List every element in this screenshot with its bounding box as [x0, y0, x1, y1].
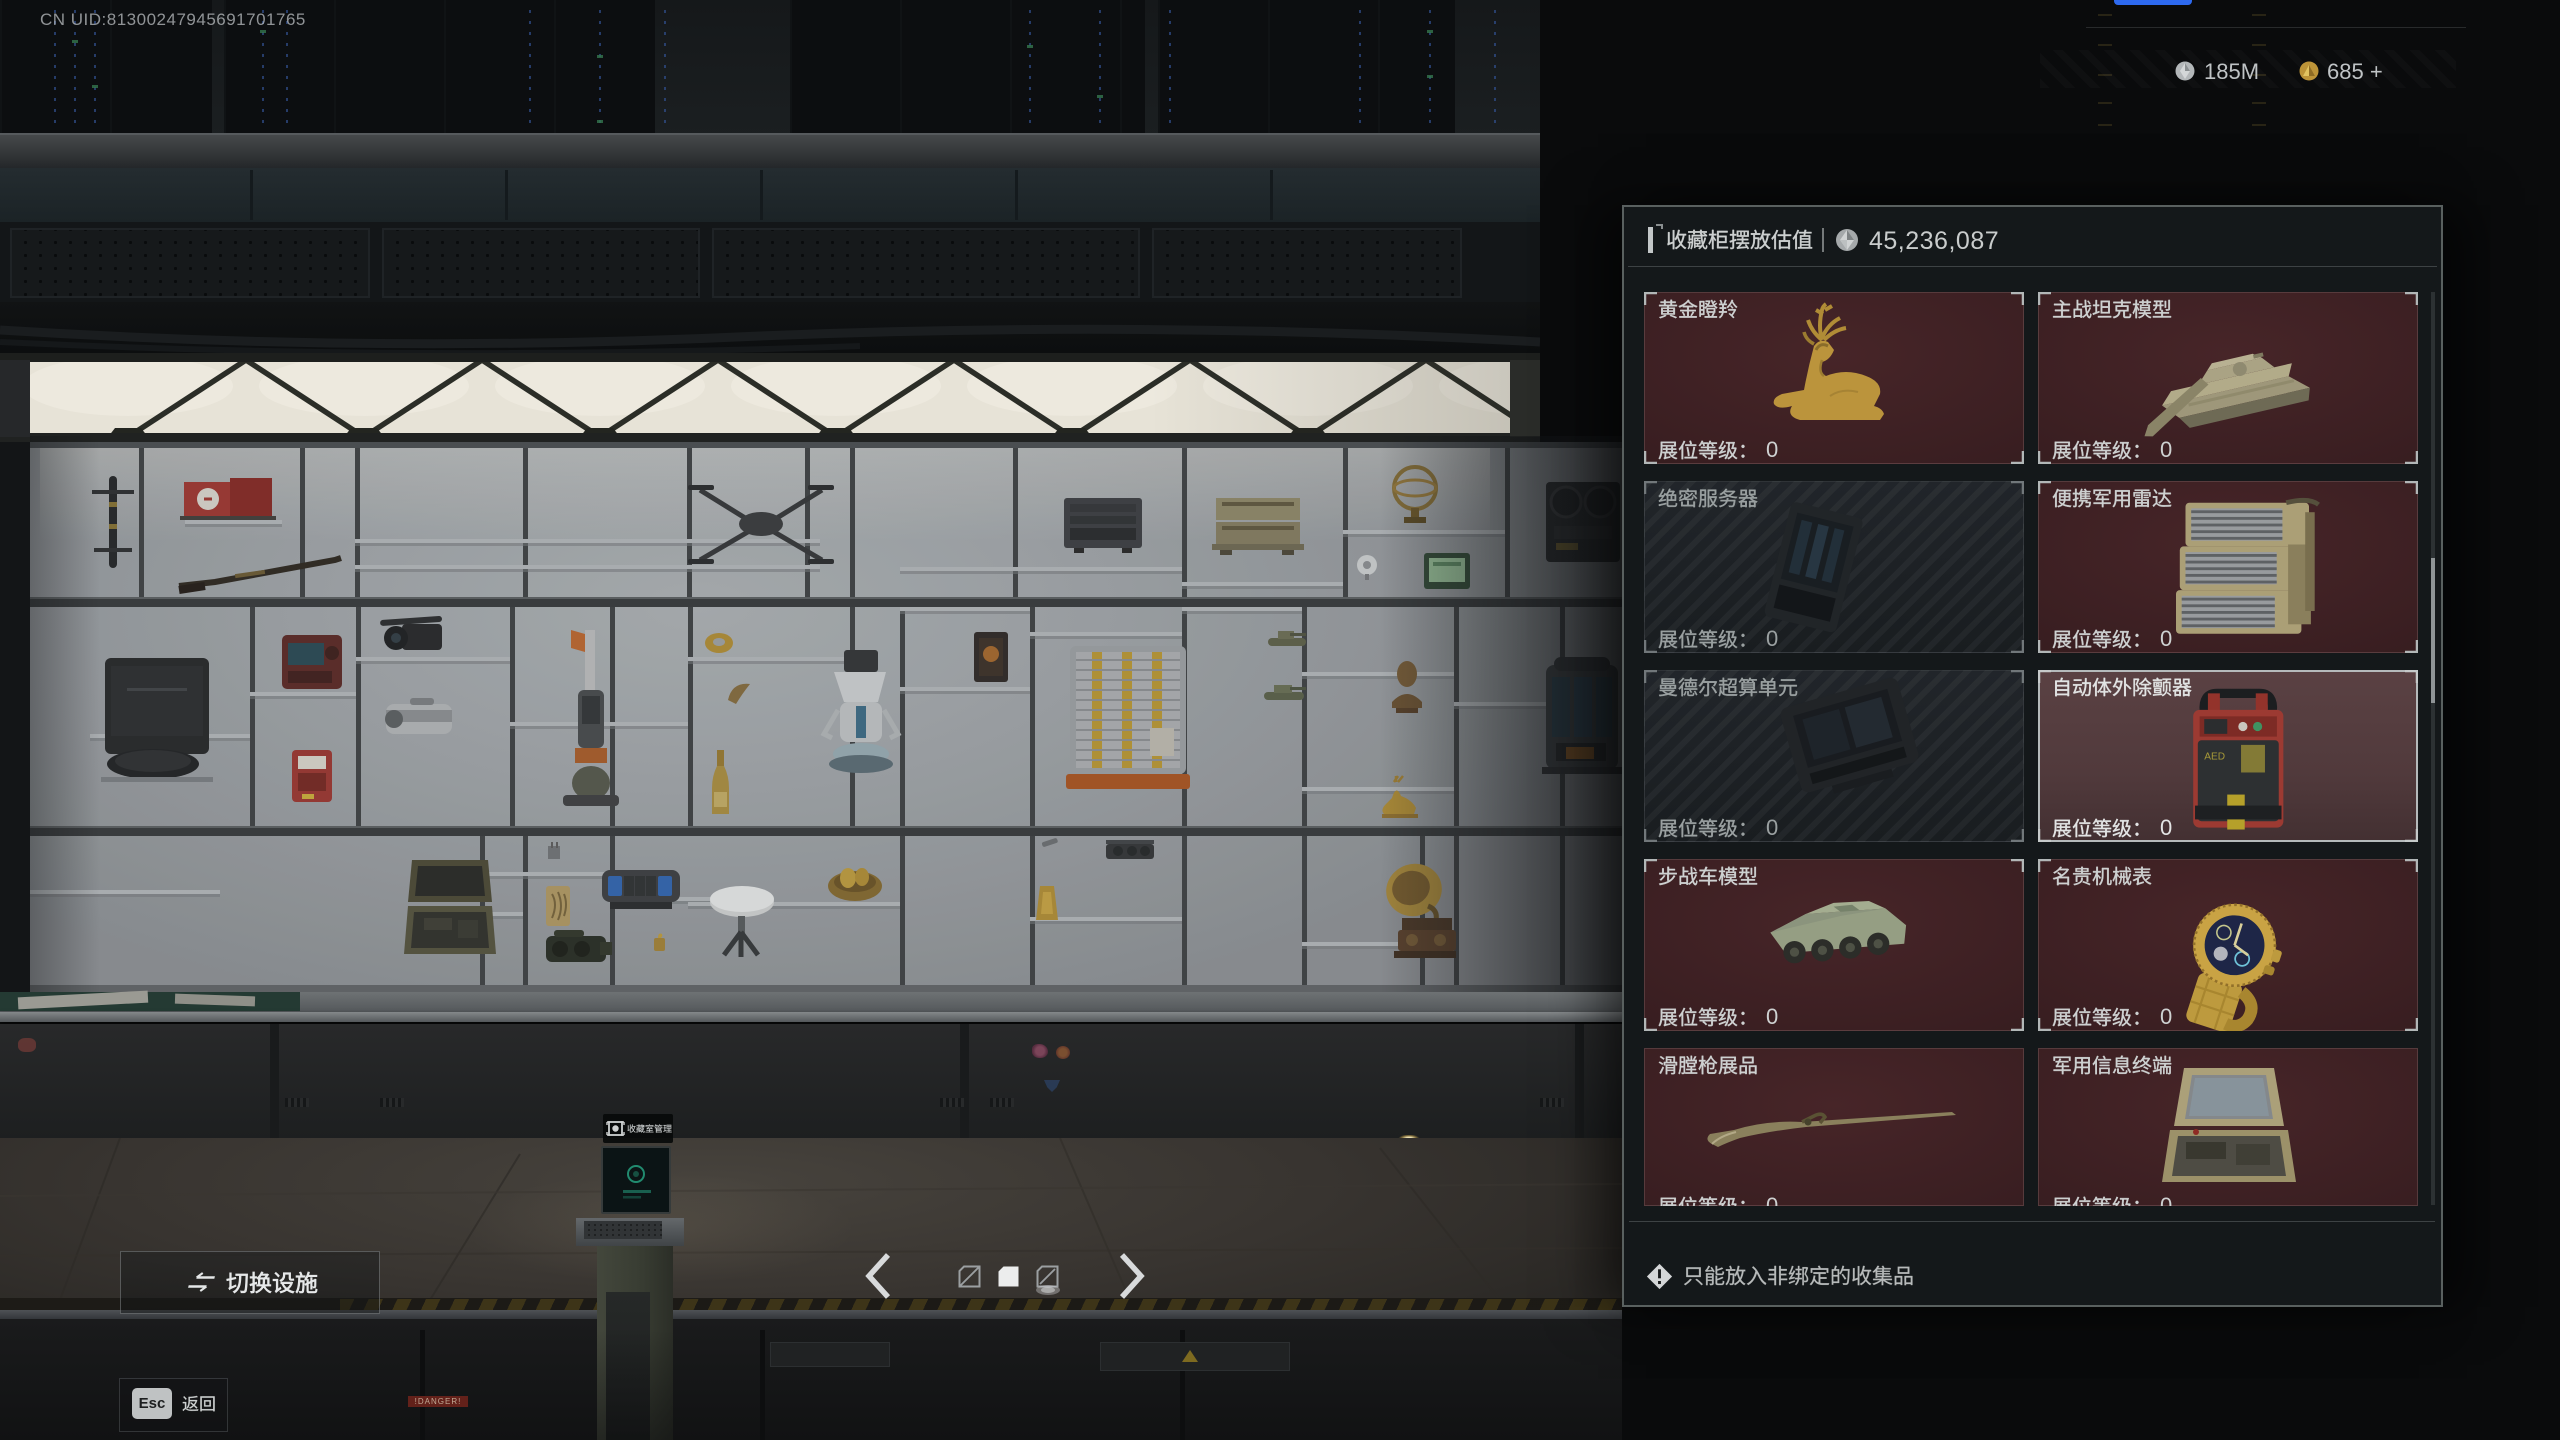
svg-text:AED: AED	[2204, 752, 2225, 763]
